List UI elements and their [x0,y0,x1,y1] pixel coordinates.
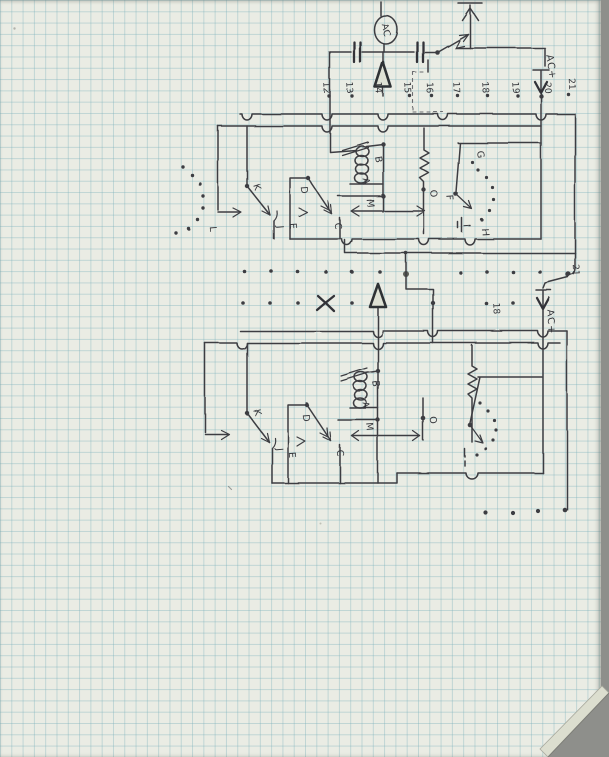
ac-source-label: AC [379,23,393,38]
coil-upper: B A M [330,52,385,212]
label-e-upper: E [287,223,298,230]
junction-21-label: 21 [570,264,581,276]
arrow-right-icon [297,437,305,446]
label-k-upper: K [250,182,263,192]
label-j-upper: J [274,224,285,229]
label-c-upper: C [332,222,344,230]
label-k-lower: K [250,407,263,417]
terminal-number: 17 [451,82,462,94]
junction-feed-left [403,251,435,343]
label-c-lower: C [334,449,346,457]
rotary-selector-upper: G F H I [444,143,541,236]
label-l-upper: L [207,226,218,233]
terminal-number: 13 [344,82,355,94]
capacitor-2 [417,42,423,62]
terminal-number: 20 [542,82,553,94]
ac-source: AC [375,2,398,52]
terminal-number: 14 [373,82,384,94]
label-d-upper: D [298,186,310,194]
arrow-right-icon [299,208,307,216]
terminal-number: 19 [510,82,521,94]
switch-k-lower: K J [245,343,284,483]
label-o-upper: O [427,189,439,198]
scanned-page: AC AC+ [0,0,609,757]
double-arrow-lower [352,431,420,441]
capacitor-1 [354,42,360,62]
label-j-lower: J [273,446,284,451]
label-e-lower: E [286,452,297,459]
big-up-arrow-middle [370,284,386,371]
label-h-upper: H [479,228,490,236]
label-g-upper: G [473,150,485,159]
ac-plus-top-label: AC+ [543,54,557,80]
bottom-terminal-row [483,508,567,514]
rotary-selector-lower [465,377,542,466]
coil-lower: B A M [338,368,381,483]
junction-18-label: 18 [491,303,502,315]
input-switch-blade [437,34,468,52]
label-i-upper: I [461,224,472,228]
terminal-number: 21 [566,78,577,90]
double-arrow-upper [351,206,425,216]
switch-k-upper: K J [245,126,285,239]
page-fold [540,686,609,757]
circuit-sketch: AC AC+ [0,0,609,757]
label-b-lower: B [370,380,382,388]
switch-d-upper: D E C [287,176,344,239]
ac-plus-feed: 21 AC+ [536,264,580,473]
middle-terminal-rows: 18 [241,270,542,315]
label-d-lower: D [300,414,312,422]
label-o-lower: O [426,415,438,424]
terminal-number: 16 [424,82,435,94]
label-f-upper: F [444,195,455,201]
label-b-upper: B [372,155,384,163]
x-mark-icon [317,296,334,311]
switch-d-lower: D E C [286,403,346,483]
label-m-lower: M [364,422,376,431]
terminal-number: 15 [402,82,413,94]
lower-circuit: K J D E C [205,331,567,510]
resistor-upper: O [420,128,440,234]
label-m-upper: M [364,198,376,207]
selector-arc-left [174,165,204,234]
terminal-number: 18 [480,82,491,94]
o-terminal-lower: O [421,398,439,440]
